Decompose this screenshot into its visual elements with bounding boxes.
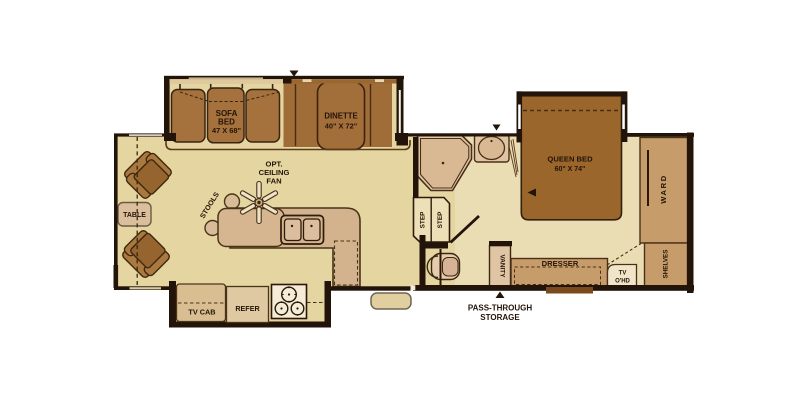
svg-text:40" X 72": 40" X 72" [325,122,358,131]
svg-text:PASS-THROUGH: PASS-THROUGH [468,304,533,313]
svg-text:60" X 74": 60" X 74" [555,166,586,173]
svg-text:STORAGE: STORAGE [480,313,520,322]
svg-text:WARD: WARD [659,174,668,204]
svg-text:DINETTE: DINETTE [324,112,357,121]
svg-text:FAN: FAN [266,177,281,186]
svg-text:47 X 68": 47 X 68" [212,126,241,135]
svg-text:TV: TV [619,271,627,277]
svg-text:SHELVES: SHELVES [663,250,670,279]
svg-text:TV CAB: TV CAB [188,308,215,317]
svg-text:REFER: REFER [235,304,260,313]
svg-text:TABLE: TABLE [123,212,146,219]
svg-text:QUEEN BED: QUEEN BED [547,155,593,164]
svg-text:STEP: STEP [420,211,427,228]
svg-text:STEP: STEP [437,211,444,228]
svg-text:DRESSER: DRESSER [542,259,579,268]
svg-text:O'HD: O'HD [615,279,630,285]
svg-text:VANITY: VANITY [499,255,506,279]
